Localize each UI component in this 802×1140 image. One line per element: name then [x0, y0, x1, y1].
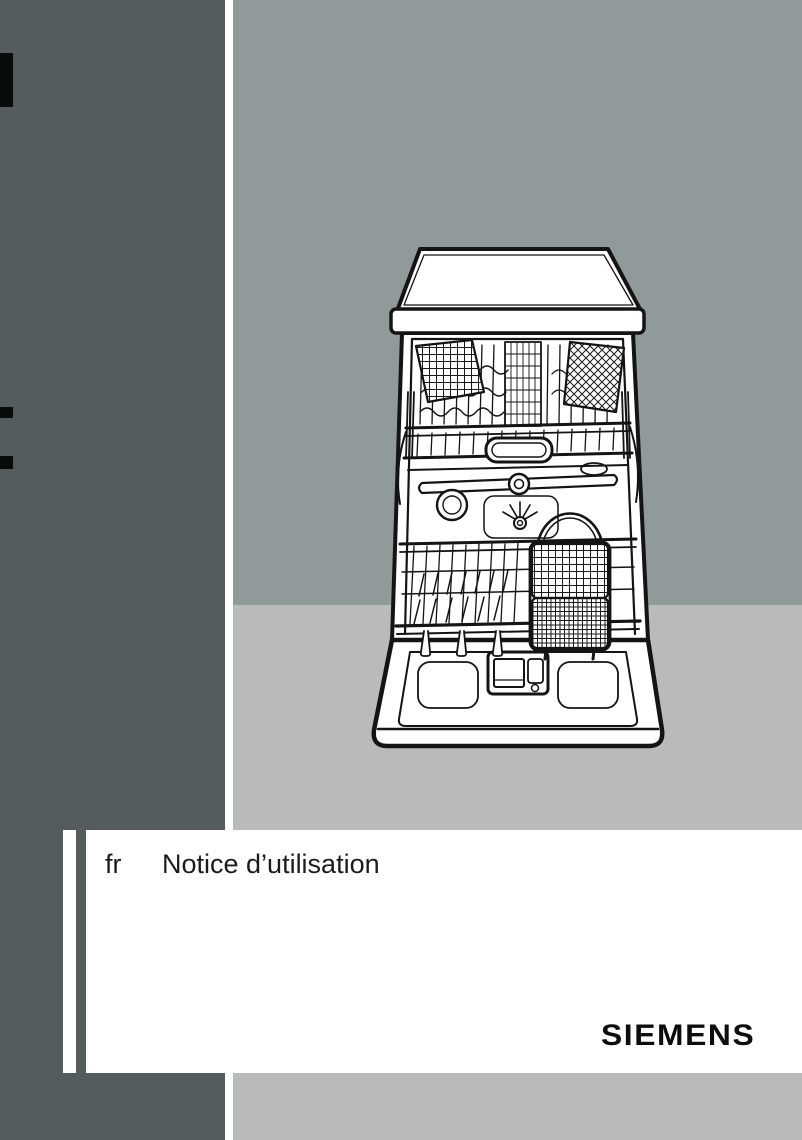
registration-mark-2 — [0, 407, 13, 418]
title-block-accent-bar — [76, 830, 86, 1073]
document-title: Notice d’utilisation — [162, 851, 380, 878]
manual-cover-page: fr Notice d’utilisation SIEMENS — [0, 0, 802, 1140]
left-dark-band — [0, 0, 225, 1140]
language-code: fr — [105, 851, 122, 878]
siemens-logo: SIEMENS — [601, 1021, 755, 1051]
dishwasher-illustration — [366, 242, 670, 764]
registration-mark-3 — [0, 456, 13, 469]
bottom-gray-strip — [233, 1073, 802, 1140]
registration-mark-1 — [0, 53, 13, 107]
